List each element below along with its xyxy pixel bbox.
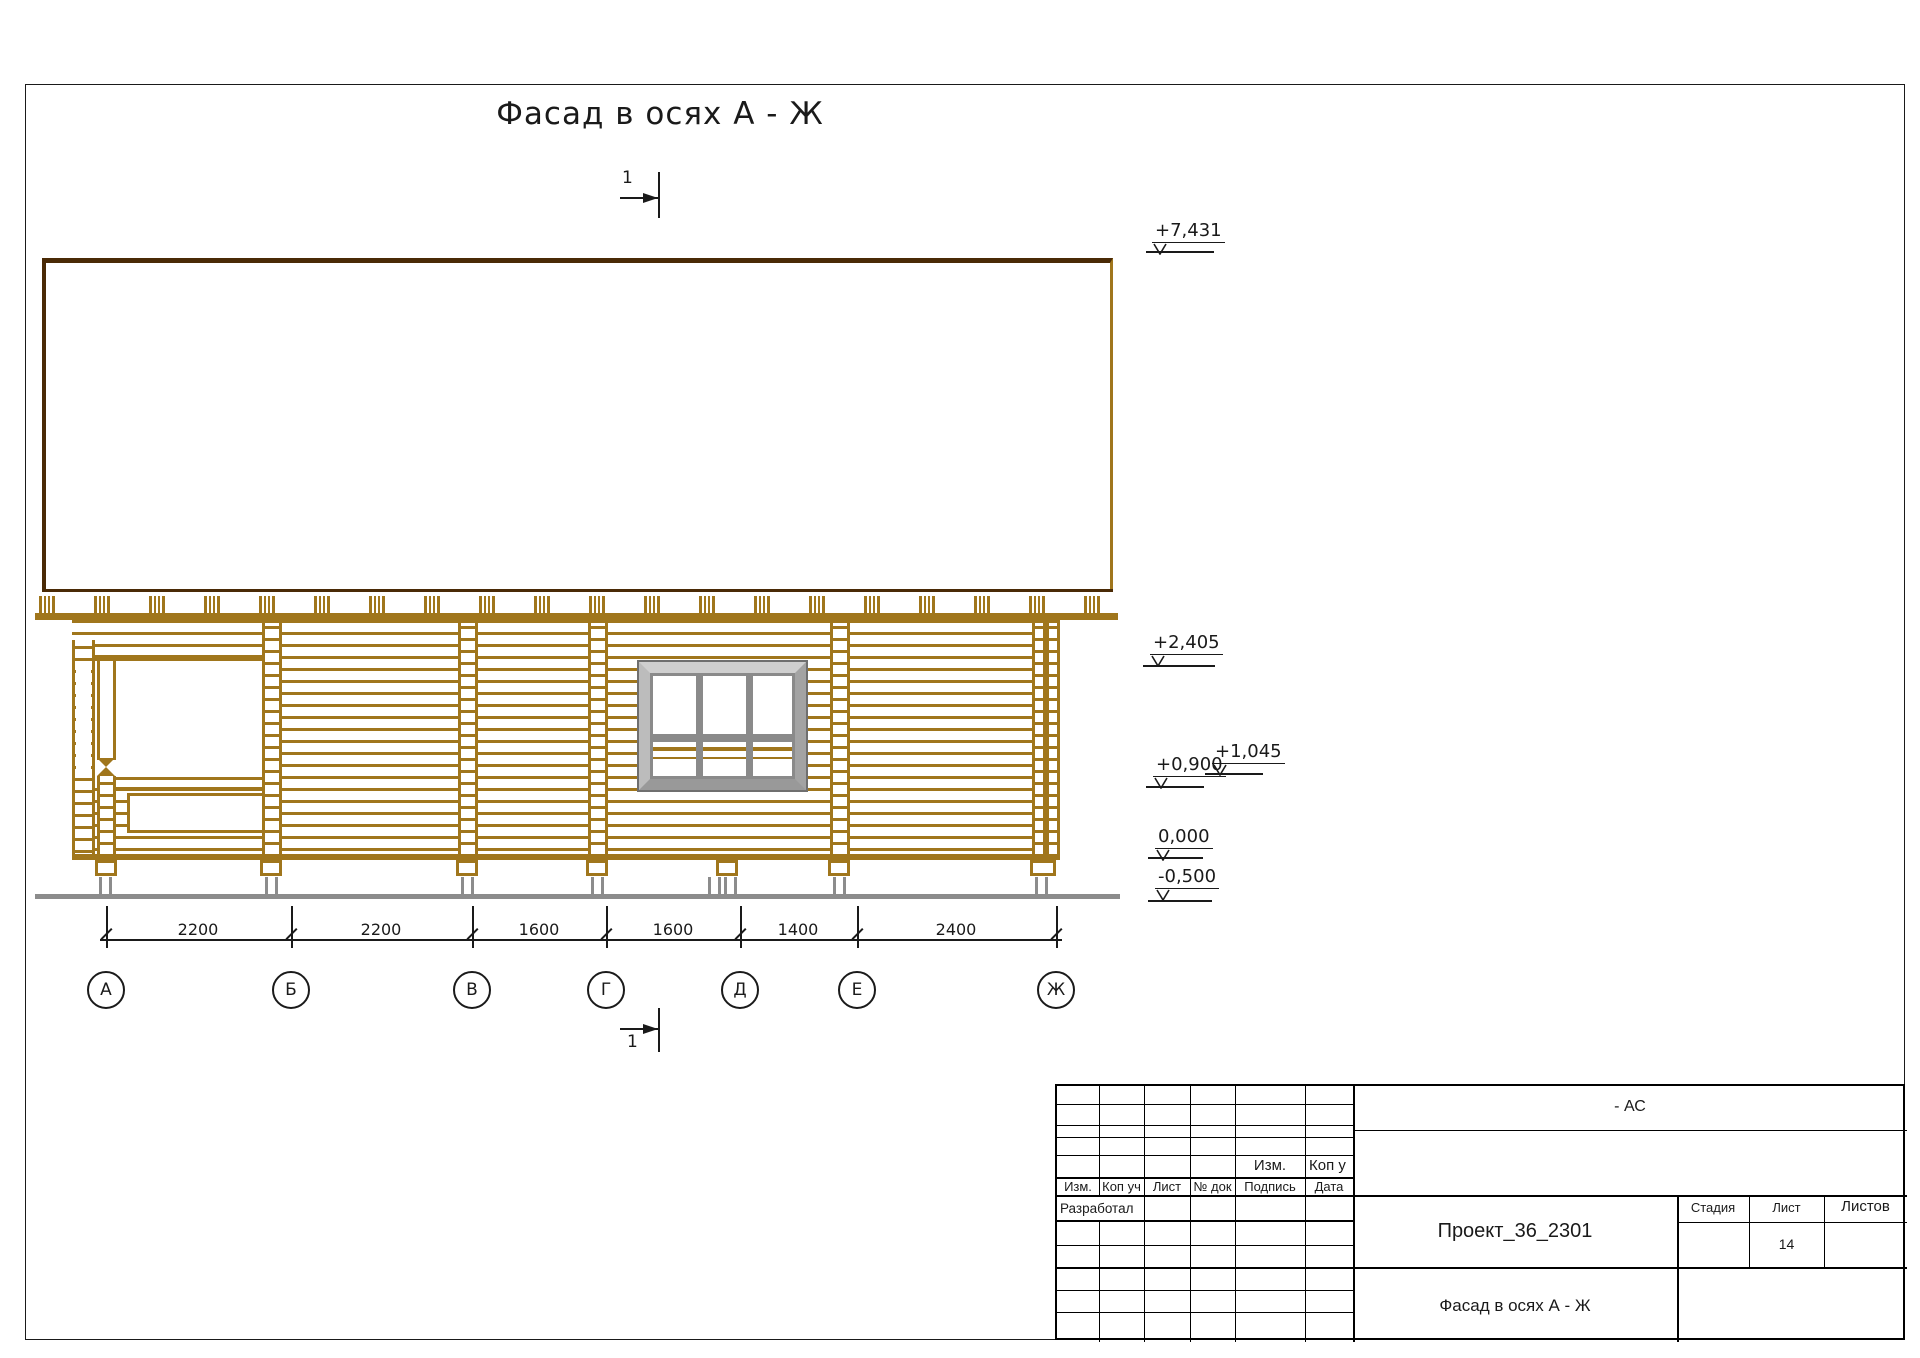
roof — [42, 258, 1113, 592]
sheet-label: Лист — [1749, 1200, 1824, 1215]
header-data: Дата — [1305, 1179, 1353, 1194]
porch-opening — [95, 661, 267, 780]
grid-line — [1057, 1290, 1353, 1291]
project-name: Проект_36_2301 — [1353, 1220, 1677, 1243]
log-line-through-window — [653, 747, 792, 751]
porch-post — [97, 661, 116, 760]
axis-bubble-d: Д — [721, 971, 759, 1009]
porch-post-turning-bottom — [97, 767, 115, 776]
section-arrow-bottom — [643, 1024, 658, 1034]
extension-line — [1056, 906, 1058, 948]
log-ends-axis-v — [458, 620, 478, 854]
role-label: Разработал — [1060, 1201, 1133, 1216]
elevation-mark-ground: -0,500 — [1155, 866, 1219, 889]
elevation-level-line — [1148, 900, 1212, 902]
window-frame — [650, 673, 795, 779]
axis-bubble-zh: Ж — [1037, 971, 1075, 1009]
section-label-top: 1 — [622, 168, 633, 188]
header-podpis: Подпись — [1235, 1179, 1305, 1194]
base-foot — [716, 860, 738, 876]
extension-line — [472, 906, 474, 948]
axis-bubble-e: Е — [838, 971, 876, 1009]
grid-line — [1057, 1195, 1907, 1197]
base-foot — [586, 860, 608, 876]
axis-bubble-b: Б — [272, 971, 310, 1009]
elevation-flag-icon — [1153, 243, 1167, 255]
elevation-level-line — [1146, 251, 1214, 253]
base-foot — [260, 860, 282, 876]
grid-line — [1190, 1086, 1191, 1342]
foundation-post — [833, 877, 846, 894]
elevation-mark-ridge: +7,431 — [1152, 220, 1225, 243]
foundation-post — [99, 877, 112, 894]
ground-line — [35, 894, 1120, 899]
sheet-number: 14 — [1749, 1236, 1824, 1252]
stage-label: Стадия — [1677, 1200, 1749, 1215]
base-foot — [95, 860, 117, 876]
grid-line — [1144, 1086, 1145, 1342]
grid-line — [1057, 1137, 1353, 1138]
sheets-label: Листов — [1824, 1198, 1907, 1215]
dimension-value: 1600 — [519, 920, 560, 939]
log-line-through-window-thin — [653, 757, 792, 759]
grid-line — [1057, 1245, 1353, 1246]
base-foot — [828, 860, 850, 876]
foundation-post — [265, 877, 278, 894]
grid-line — [1057, 1312, 1353, 1313]
header-list: Лист — [1144, 1179, 1190, 1194]
section-label-bottom: 1 — [627, 1032, 638, 1052]
elevation-mark-zero: 0,000 — [1155, 826, 1213, 849]
section-line-top — [658, 172, 660, 218]
log-ends-left-gap — [76, 668, 91, 772]
grid-line — [1057, 1155, 1353, 1156]
upper-kop-label: Коп у — [1309, 1157, 1353, 1174]
foundation-post — [724, 877, 737, 894]
dimension-value: 2400 — [936, 920, 977, 939]
header-izm: Изм. — [1057, 1179, 1099, 1194]
section-arrow-top — [643, 193, 658, 203]
title-block: - АС Изм. Коп у Изм. Коп уч Лист № док П… — [1055, 1084, 1905, 1340]
grid-line — [1677, 1195, 1679, 1342]
foundation-post — [591, 877, 604, 894]
porch-post-turning-top — [97, 758, 115, 767]
log-ends-axis-e — [830, 620, 850, 854]
grid-line — [1305, 1086, 1306, 1342]
grid-line — [1057, 1267, 1907, 1269]
window — [637, 660, 808, 792]
window-mullion — [746, 676, 753, 776]
rafter-tails — [35, 596, 1118, 613]
porch-lower-opening — [127, 793, 267, 833]
elevation-level-line — [1148, 857, 1203, 859]
extension-line — [740, 906, 742, 948]
doc-code: - АС — [1353, 1098, 1907, 1116]
section-line-bottom — [658, 1008, 660, 1052]
axis-bubble-g: Г — [587, 971, 625, 1009]
log-ends-right-edge-1 — [1032, 620, 1046, 854]
log-ends-right-edge-2 — [1046, 620, 1060, 854]
dimension-line — [100, 939, 1062, 941]
dimension-value: 1400 — [778, 920, 819, 939]
window-mid-rail — [653, 734, 792, 742]
foundation-post — [708, 877, 721, 894]
log-ends-axis-b — [262, 620, 282, 854]
window-mullion — [696, 676, 703, 776]
foundation-post — [1035, 877, 1048, 894]
roof-bottom-edge — [42, 589, 1113, 592]
header-kop-uch: Коп уч — [1099, 1179, 1144, 1194]
grid-line — [1057, 1220, 1353, 1222]
log-ends-axis-g — [588, 620, 608, 854]
drawing-title: Фасад в осях А - Ж — [420, 96, 900, 132]
grid-line — [1235, 1086, 1236, 1342]
elevation-level-line — [1146, 786, 1204, 788]
dimension-value: 1600 — [653, 920, 694, 939]
bottom-beam — [72, 854, 1060, 860]
extension-line — [606, 906, 608, 948]
grid-line — [1057, 1125, 1353, 1126]
drawing-sheet: Фасад в осях А - Ж 1 — [0, 0, 1920, 1358]
porch-post-base-logs — [97, 776, 116, 860]
foundation-post — [461, 877, 474, 894]
axis-bubble-v: В — [453, 971, 491, 1009]
extension-line — [857, 906, 859, 948]
elevation-flag-icon — [1156, 849, 1170, 861]
grid-line — [1099, 1220, 1100, 1342]
grid-line — [1677, 1222, 1907, 1223]
base-foot — [1030, 860, 1056, 876]
base-foot — [456, 860, 478, 876]
dimension-value: 2200 — [361, 920, 402, 939]
header-no-dok: № док — [1190, 1179, 1235, 1194]
grid-line — [1057, 1104, 1353, 1105]
extension-line — [106, 906, 108, 948]
elevation-mark-sill: +0,900 — [1153, 754, 1226, 777]
elevation-mark-eave: +2,405 — [1150, 632, 1223, 655]
grid-line — [1353, 1130, 1907, 1131]
axis-bubble-a: А — [87, 971, 125, 1009]
drawing-name: Фасад в осях А - Ж — [1353, 1296, 1677, 1316]
dimension-value: 2200 — [178, 920, 219, 939]
eave-fascia — [35, 613, 1118, 620]
extension-line — [291, 906, 293, 948]
elevation-level-line — [1143, 665, 1215, 667]
porch-rail — [116, 777, 267, 790]
upper-izm-label: Изм. — [1235, 1157, 1305, 1174]
